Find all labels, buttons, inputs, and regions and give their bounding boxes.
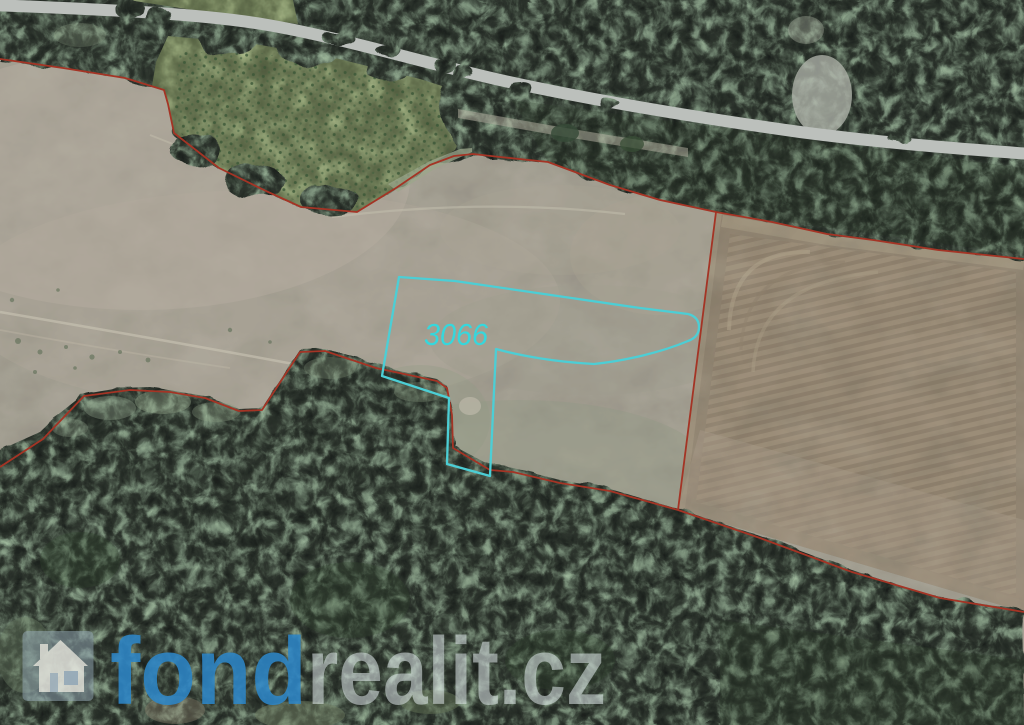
svg-text:realit.cz: realit.cz (307, 618, 606, 725)
svg-text:fond: fond (110, 618, 307, 725)
